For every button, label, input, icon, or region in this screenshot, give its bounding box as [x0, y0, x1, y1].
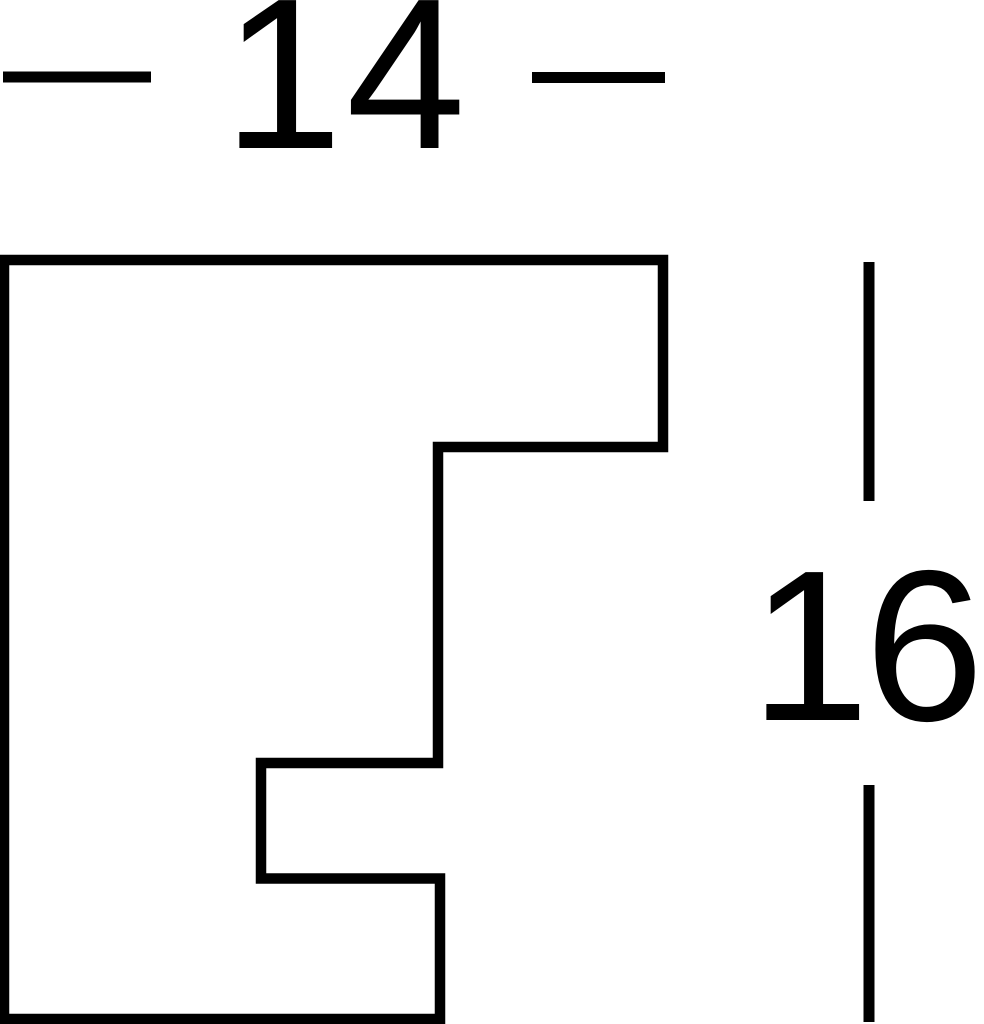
svg-text:4: 4	[346, 0, 466, 194]
svg-text:1: 1	[223, 0, 343, 194]
svg-text:1: 1	[750, 525, 870, 766]
svg-text:6: 6	[865, 525, 984, 766]
